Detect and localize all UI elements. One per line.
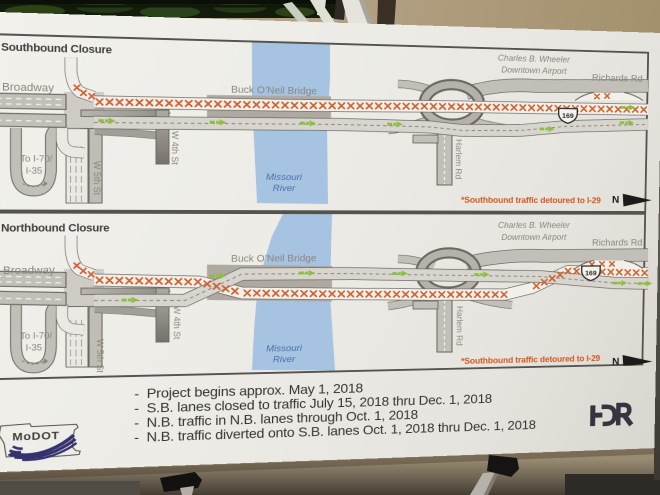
svg-text:Broadway: Broadway <box>2 82 54 94</box>
svg-text:W 4th St: W 4th St <box>169 131 180 165</box>
svg-text:Richards Rd: Richards Rd <box>592 238 643 248</box>
svg-text:To I-70/: To I-70/ <box>20 331 52 341</box>
svg-text:*Southbound traffic detoured t: *Southbound traffic detoured to I-29 <box>461 196 601 206</box>
svg-text:Harlem Rd: Harlem Rd <box>453 139 463 179</box>
svg-text:Harlem Rd: Harlem Rd <box>454 306 464 346</box>
svg-text:River: River <box>273 184 296 194</box>
svg-text:*Southbound traffic detoured t: *Southbound traffic detoured to I-29 <box>461 354 600 366</box>
svg-text:River: River <box>273 355 296 365</box>
svg-text:Downtown Airport: Downtown Airport <box>501 65 567 75</box>
svg-text:N: N <box>612 356 619 367</box>
svg-text:Buck O’Neil Bridge: Buck O’Neil Bridge <box>231 84 317 97</box>
svg-text:Southbound Closure: Southbound Closure <box>1 42 112 56</box>
svg-text:Broadway: Broadway <box>3 265 55 277</box>
svg-text:To I-70/: To I-70/ <box>20 154 53 164</box>
svg-text:Charles B. Wheeler: Charles B. Wheeler <box>498 221 571 230</box>
svg-text:Richards Rd: Richards Rd <box>592 73 643 85</box>
svg-text:Missouri: Missouri <box>266 344 303 355</box>
svg-text:169: 169 <box>585 269 597 277</box>
svg-text:Northbound Closure: Northbound Closure <box>1 223 109 234</box>
svg-text:Downtown Airport: Downtown Airport <box>501 233 566 242</box>
svg-text:Missouri: Missouri <box>266 173 303 183</box>
svg-text:Charles B. Wheeler: Charles B. Wheeler <box>498 54 571 65</box>
svg-text:Buck O’Neil Bridge: Buck O’Neil Bridge <box>231 253 317 264</box>
svg-text:W 5th St: W 5th St <box>94 339 105 373</box>
svg-text:W 4th St: W 4th St <box>171 306 182 340</box>
svg-text:N: N <box>612 194 619 205</box>
svg-text:I-35: I-35 <box>26 343 43 353</box>
svg-text:W 5th St: W 5th St <box>91 161 102 195</box>
svg-text:I-35: I-35 <box>26 166 43 176</box>
svg-text:169: 169 <box>562 112 574 120</box>
